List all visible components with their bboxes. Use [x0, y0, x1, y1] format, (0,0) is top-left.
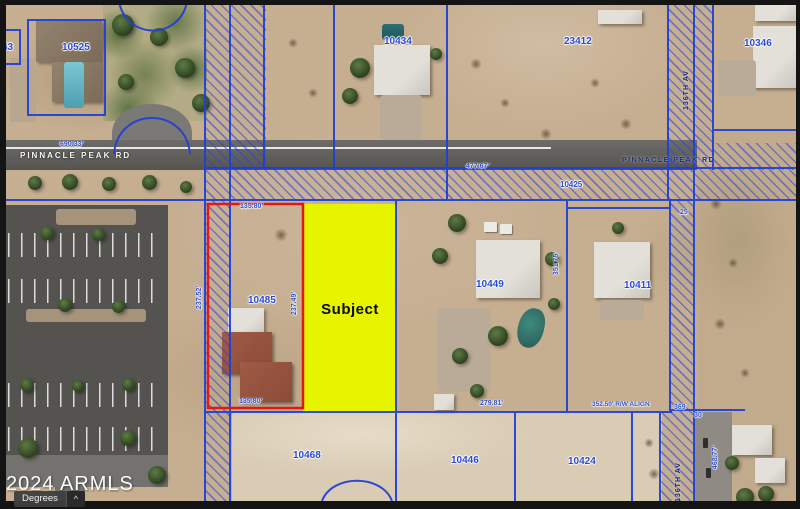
- street-label: PINNACLE PEAK RD: [20, 151, 131, 160]
- parcel-label: 10525: [62, 42, 90, 53]
- parcel-label: 10446: [451, 455, 479, 466]
- dimension-label: 351.75': [553, 252, 560, 275]
- parcel-linework: [0, 0, 800, 509]
- parcel-label: 10425: [560, 180, 582, 189]
- dimension-label: 279.81': [480, 400, 503, 407]
- frame-right: [796, 0, 800, 509]
- parcel-label: 10434: [384, 36, 412, 47]
- parcel-label: 10468: [293, 450, 321, 461]
- street-label: 136TH AV: [683, 30, 690, 110]
- dimension-label: 25: [680, 209, 688, 216]
- dimension-label: 468.77': [712, 446, 719, 469]
- frame-top: [0, 0, 800, 5]
- degrees-control[interactable]: Degrees ^: [14, 491, 85, 507]
- frame-left: [0, 0, 6, 509]
- dimension-label: 135.80': [239, 398, 262, 405]
- parcel-label: 23412: [564, 36, 592, 47]
- dimension-label: 30: [694, 412, 702, 419]
- dimension-label: 369: [674, 404, 686, 411]
- chevron-up-icon[interactable]: ^: [66, 491, 85, 507]
- dimension-label: 237.52': [196, 286, 203, 309]
- parcel-label: 10424: [568, 456, 596, 467]
- map-canvas[interactable]: Subject: [0, 0, 800, 509]
- street-label: 136TH AV: [675, 446, 682, 502]
- frame-bottom: [0, 501, 800, 509]
- dimension-label: 477.67': [466, 163, 489, 170]
- red-outlined-parcel: [208, 204, 303, 408]
- dimension-label: 237.49': [291, 292, 298, 315]
- parcel-label: 10346: [744, 38, 772, 49]
- parcel-label: 10411: [624, 280, 651, 291]
- parcel-label: 10485: [248, 295, 276, 306]
- parcel-boundary-lines: [6, 2, 796, 501]
- parcel-label: 10449: [476, 279, 504, 290]
- degrees-label: Degrees: [14, 491, 66, 507]
- dimension-label: 690.33': [60, 141, 83, 148]
- street-label: PINNACLE PEAK RD: [622, 157, 715, 164]
- dimension-label: 352.50' R/W ALIGN: [592, 401, 650, 408]
- dimension-label: 135.80': [240, 203, 263, 210]
